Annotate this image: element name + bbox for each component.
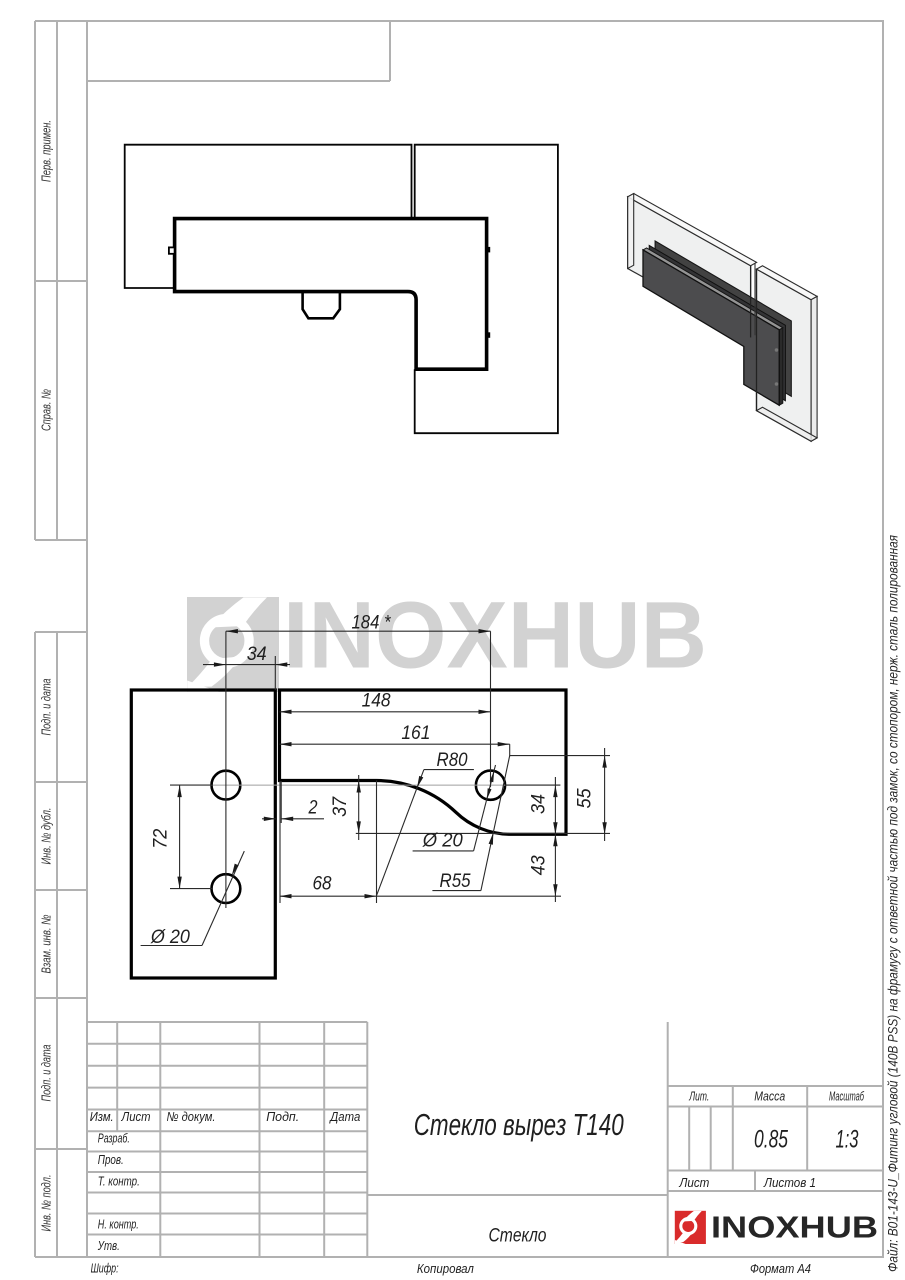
svg-text:Подп. и дата: Подп. и дата (39, 1045, 54, 1102)
svg-text:Перв. примен.: Перв. примен. (39, 120, 54, 182)
svg-text:184 *: 184 * (352, 613, 392, 634)
svg-text:Н. контр.: Н. контр. (98, 1217, 139, 1232)
svg-text:Инв. № подл.: Инв. № подл. (39, 1175, 54, 1232)
svg-text:Ø 20: Ø 20 (150, 927, 190, 948)
svg-text:Справ. №: Справ. № (39, 389, 54, 431)
svg-text:0.85: 0.85 (754, 1126, 788, 1154)
svg-text:Утв.: Утв. (97, 1238, 120, 1253)
svg-text:Стекло вырез Т140: Стекло вырез Т140 (414, 1107, 624, 1142)
svg-text:Пров.: Пров. (98, 1152, 124, 1167)
svg-text:Лист: Лист (121, 1109, 151, 1124)
svg-text:INOXHUB: INOXHUB (711, 1209, 878, 1244)
svg-text:Файл: В01-143-U_Фитинг угловой: Файл: В01-143-U_Фитинг угловой (140В PSS… (886, 535, 901, 1272)
svg-text:Разраб.: Разраб. (98, 1131, 130, 1146)
svg-text:№ докум.: № докум. (167, 1109, 216, 1124)
svg-text:Подп.: Подп. (266, 1109, 299, 1124)
svg-text:72: 72 (151, 828, 172, 848)
svg-text:55: 55 (574, 788, 595, 808)
svg-text:Листов 1: Листов 1 (763, 1175, 816, 1190)
svg-text:Шифр:: Шифр: (91, 1261, 119, 1276)
svg-text:R80: R80 (437, 750, 468, 771)
svg-text:INOXHUB: INOXHUB (283, 583, 707, 689)
svg-text:Формат A4: Формат A4 (750, 1261, 811, 1276)
svg-text:68: 68 (313, 874, 332, 895)
svg-text:148: 148 (362, 691, 391, 712)
svg-text:Копировал: Копировал (417, 1261, 475, 1276)
svg-text:1:3: 1:3 (836, 1126, 859, 1154)
svg-text:Изм.: Изм. (90, 1109, 114, 1124)
svg-text:Подп. и дата: Подп. и дата (39, 679, 54, 736)
svg-text:Масштаб: Масштаб (829, 1088, 864, 1103)
svg-text:Т. контр.: Т. контр. (98, 1174, 140, 1189)
svg-text:Стекло: Стекло (489, 1225, 547, 1247)
svg-text:Масса: Масса (754, 1088, 785, 1103)
svg-text:Инв. № дубл.: Инв. № дубл. (39, 808, 54, 865)
svg-text:Взам. инв. №: Взам. инв. № (39, 915, 54, 974)
svg-text:Лит.: Лит. (689, 1088, 710, 1103)
svg-text:Лист: Лист (679, 1175, 710, 1190)
svg-text:2: 2 (308, 798, 318, 819)
svg-text:161: 161 (401, 723, 430, 744)
svg-text:R55: R55 (440, 871, 471, 892)
svg-text:43: 43 (529, 855, 550, 875)
svg-text:34: 34 (247, 644, 267, 665)
svg-text:Ø 20: Ø 20 (422, 831, 463, 852)
svg-text:34: 34 (529, 794, 550, 814)
svg-text:37: 37 (330, 796, 351, 817)
svg-text:Дата: Дата (329, 1109, 361, 1124)
